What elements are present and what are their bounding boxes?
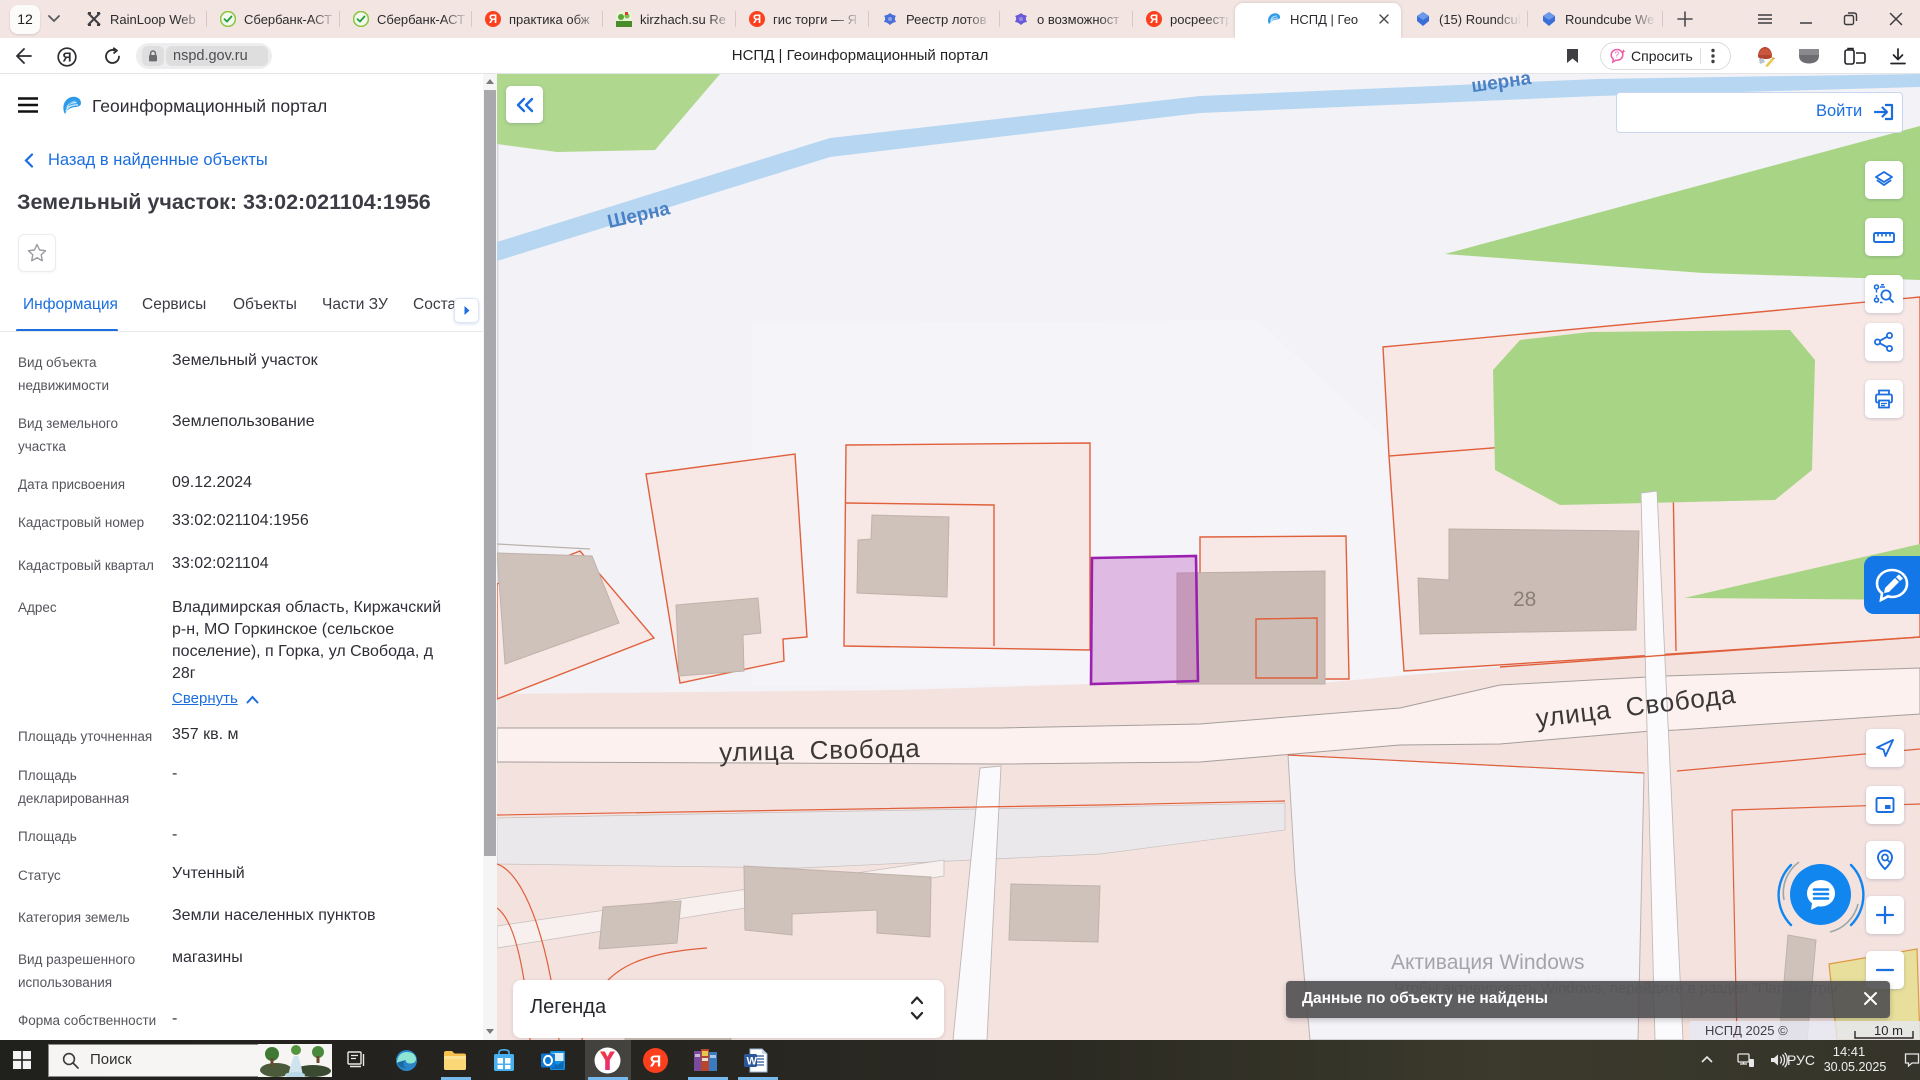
svg-text:Я: Я	[1150, 14, 1158, 26]
svg-text:W: W	[747, 1056, 758, 1068]
svg-text:?: ?	[1615, 51, 1620, 60]
svg-text:улица Свобода: улица Свобода	[719, 733, 921, 767]
svg-text:Я: Я	[753, 14, 761, 26]
svg-text:Я: Я	[63, 51, 72, 65]
svg-text:Я: Я	[650, 1054, 662, 1071]
svg-text:Я: Я	[489, 14, 497, 26]
svg-text:28: 28	[1513, 588, 1536, 611]
